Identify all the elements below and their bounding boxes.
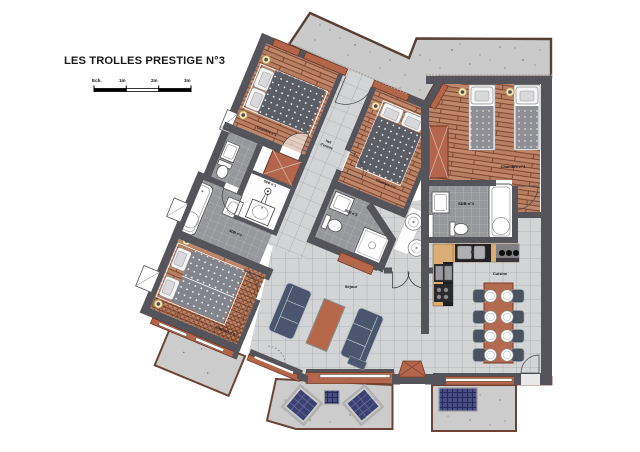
- svg-text:1m: 1m: [119, 78, 126, 83]
- svg-text:Ech.: Ech.: [92, 78, 102, 83]
- svg-text:LES TROLLES PRESTIGE N°3: LES TROLLES PRESTIGE N°3: [64, 55, 225, 67]
- svg-text:Cuisine: Cuisine: [493, 271, 508, 276]
- svg-text:SDB n°4: SDB n°4: [458, 201, 475, 206]
- svg-text:2m: 2m: [151, 78, 158, 83]
- svg-text:Séjour: Séjour: [345, 284, 358, 289]
- svg-text:3m: 3m: [184, 78, 191, 83]
- svg-text:Chambre n°4: Chambre n°4: [501, 164, 526, 169]
